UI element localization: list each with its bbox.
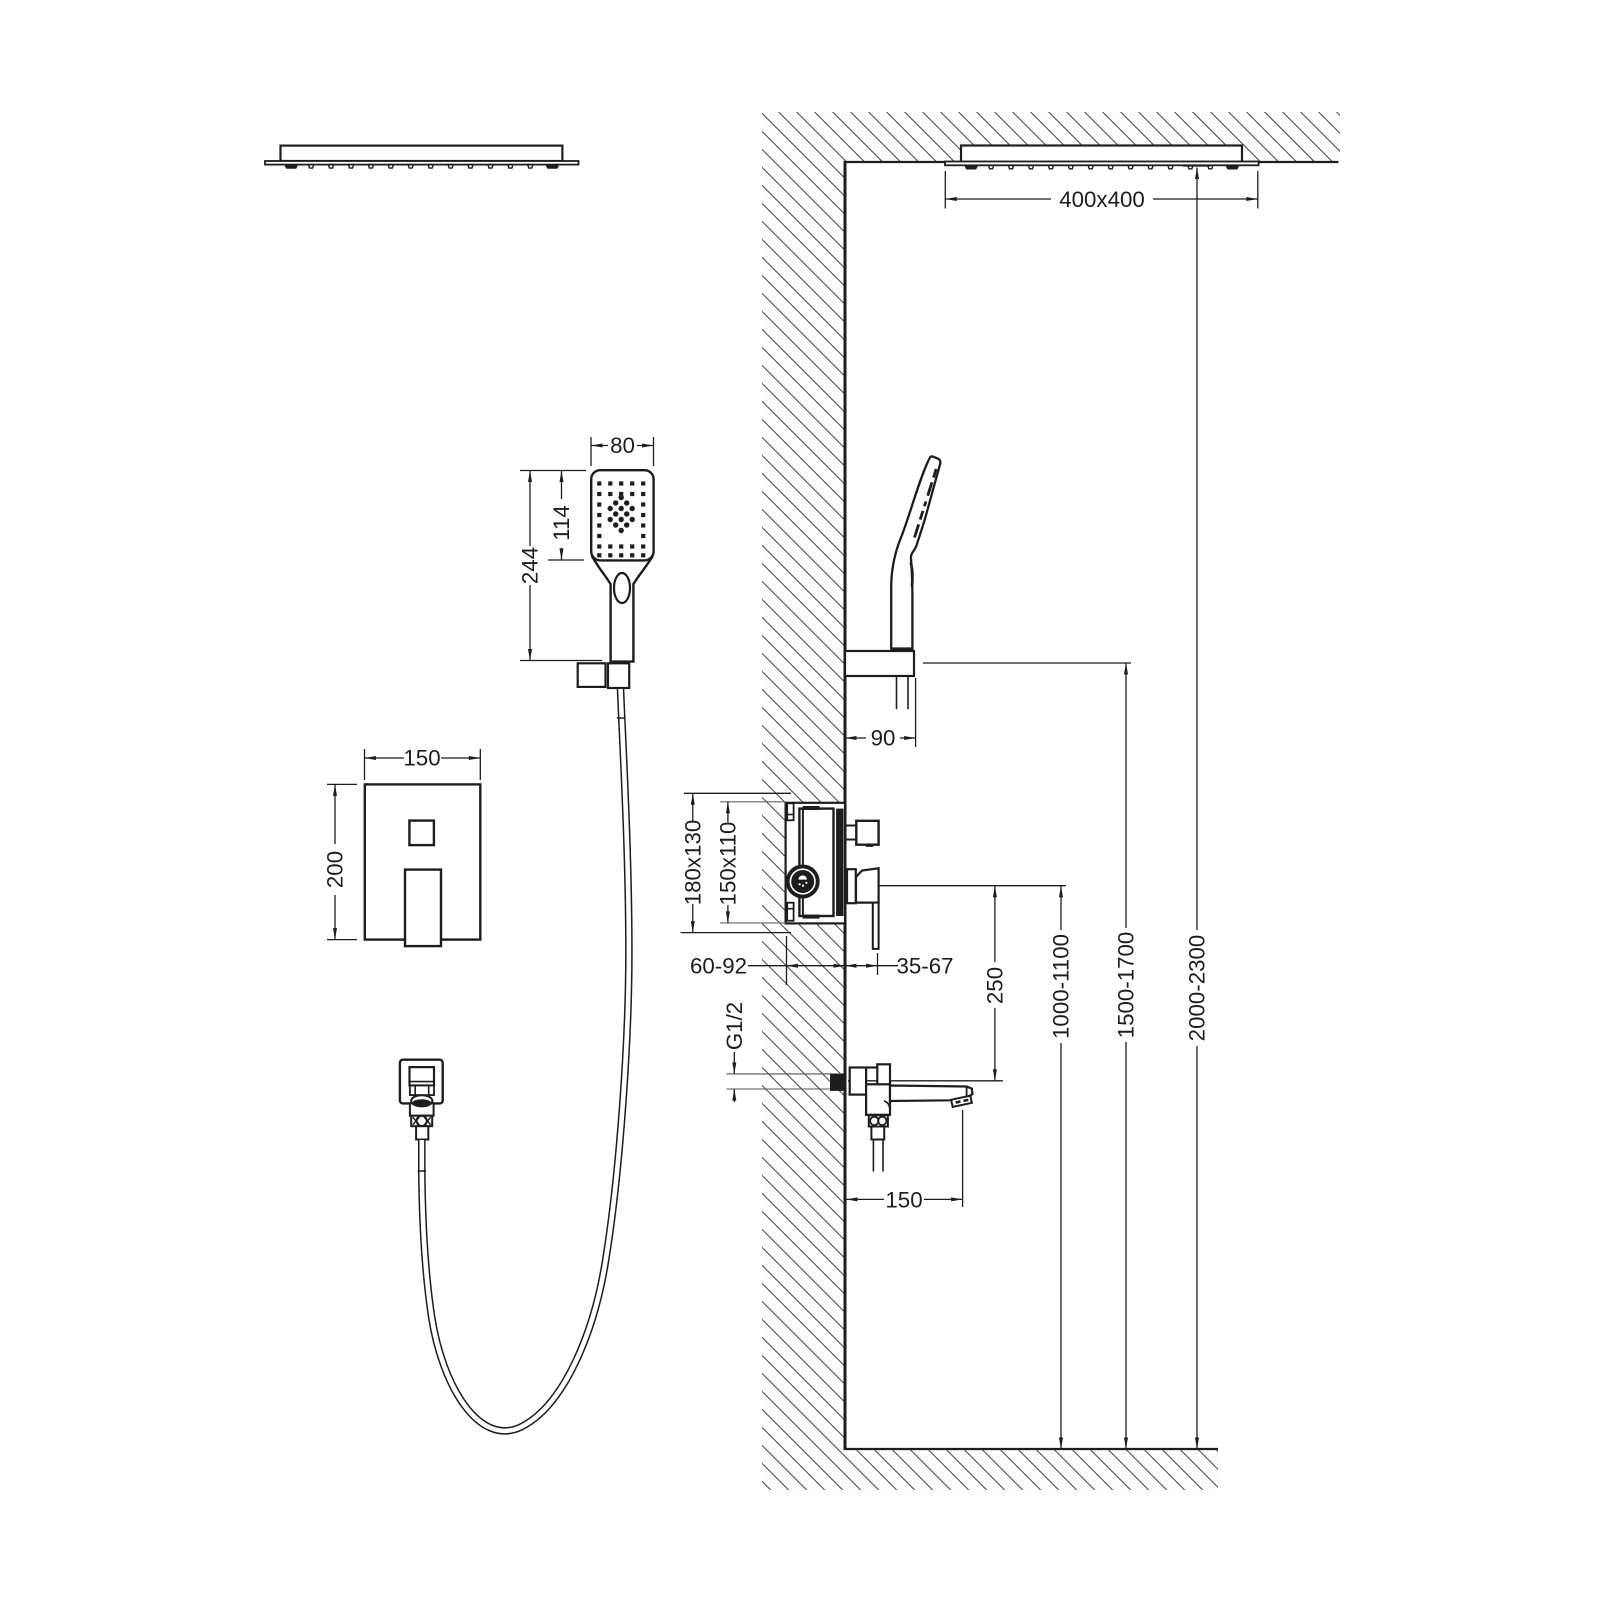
svg-text:1500-1700: 1500-1700: [1114, 932, 1139, 1039]
svg-text:250: 250: [982, 967, 1007, 1004]
svg-text:114: 114: [549, 505, 574, 541]
svg-text:90: 90: [871, 726, 896, 751]
svg-text:150: 150: [885, 1187, 922, 1212]
svg-text:G1/2: G1/2: [722, 1002, 747, 1050]
svg-text:244: 244: [518, 547, 543, 584]
svg-text:150: 150: [403, 746, 440, 771]
svg-text:1000-1100: 1000-1100: [1049, 934, 1074, 1039]
svg-text:2000-2300: 2000-2300: [1185, 935, 1210, 1042]
svg-text:180x130: 180x130: [680, 820, 705, 906]
svg-text:35-67: 35-67: [896, 954, 953, 979]
svg-text:400x400: 400x400: [1059, 187, 1145, 212]
svg-text:60-92: 60-92: [690, 954, 747, 979]
svg-text:200: 200: [323, 851, 348, 888]
svg-text:80: 80: [610, 433, 635, 458]
svg-text:150x110: 150x110: [715, 822, 740, 906]
